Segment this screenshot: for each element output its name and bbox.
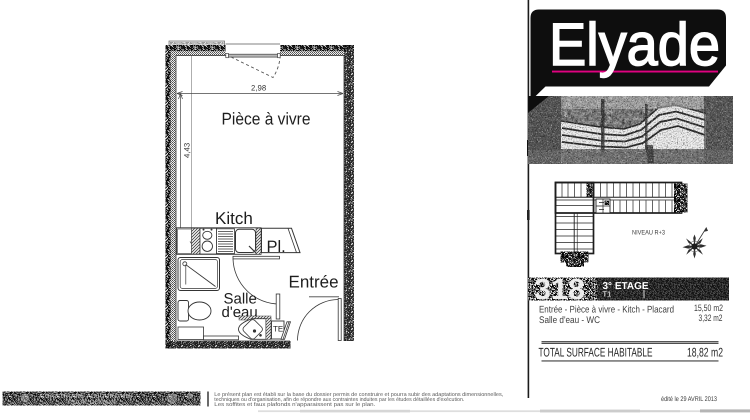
svg-text:318: 318 — [534, 274, 585, 306]
svg-text:4,43: 4,43 — [183, 143, 192, 158]
svg-text:T1: T1 — [603, 290, 612, 299]
svg-text:TE: TE — [273, 325, 283, 334]
svg-text:Entrée: Entrée — [289, 273, 339, 292]
svg-text:NIVEAU R+3: NIVEAU R+3 — [632, 230, 665, 237]
svg-text:Kitch: Kitch — [215, 209, 253, 228]
svg-text:Les soffites et faux plafonds: Les soffites et faux plafonds n'apparais… — [214, 402, 375, 408]
svg-text:Pièce à vivre: Pièce à vivre — [222, 110, 311, 129]
svg-text:Elyade: Elyade — [549, 11, 720, 78]
svg-text:TOTAL SURFACE HABITABLE: TOTAL SURFACE HABITABLE — [539, 346, 653, 360]
svg-text:édité le 29 AVRIL 2013: édité le 29 AVRIL 2013 — [661, 396, 717, 403]
svg-text:Pl.: Pl. — [267, 238, 286, 256]
svg-text:Salle d'eau - WC: Salle d'eau - WC — [539, 315, 600, 326]
svg-text:18,82 m2: 18,82 m2 — [687, 346, 723, 360]
svg-text:2,98: 2,98 — [251, 84, 266, 93]
svg-text:POUR DEMAIN: POUR DEMAIN — [68, 399, 116, 406]
svg-text:3,32 m2: 3,32 m2 — [699, 313, 723, 323]
svg-text:15,50 m2: 15,50 m2 — [694, 303, 723, 313]
